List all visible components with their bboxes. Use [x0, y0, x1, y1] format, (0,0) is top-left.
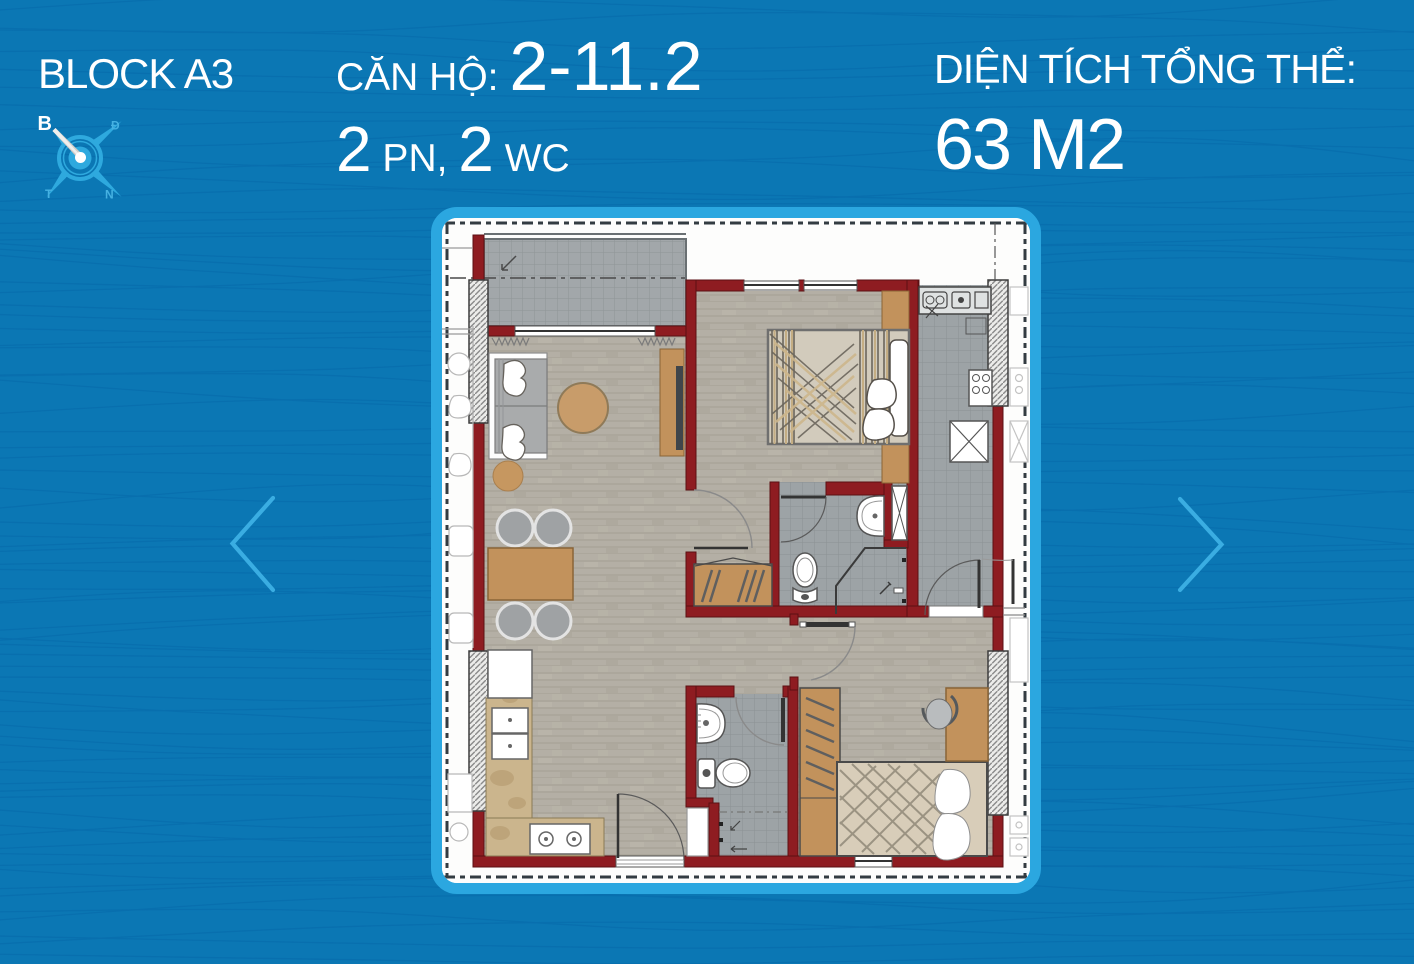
svg-text:Đ: Đ	[111, 119, 120, 133]
svg-text:N: N	[105, 188, 114, 202]
svg-text:B: B	[38, 113, 52, 135]
svg-text:T: T	[45, 187, 53, 201]
